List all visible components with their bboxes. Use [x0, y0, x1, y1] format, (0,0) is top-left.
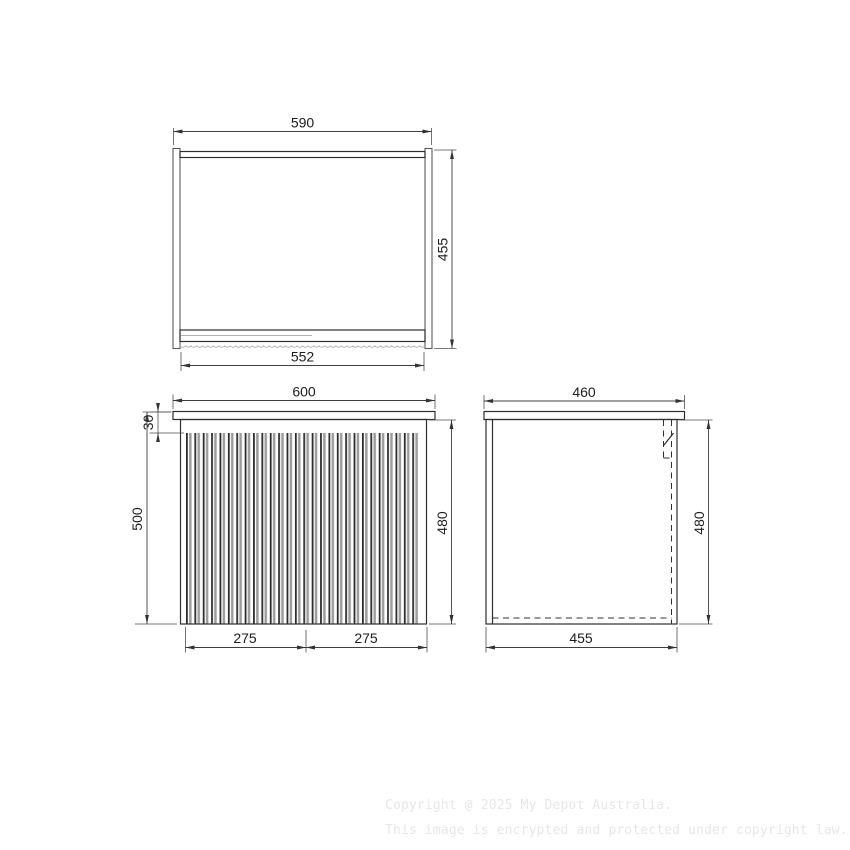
drawing-canvas: 590 552 455 600 30 500 — [0, 0, 850, 850]
top-view-right-side-panel — [425, 149, 432, 349]
dim-label-door-left: 275 — [233, 630, 257, 646]
dim-label-side-body-depth: 455 — [569, 630, 593, 646]
front-view: 600 30 500 480 275 275 — [129, 384, 456, 653]
dim-label-height: 500 — [129, 507, 145, 531]
wave-line — [180, 346, 425, 348]
dim-label-front-body-height: 480 — [434, 511, 450, 535]
dim-label-side-body-height: 480 — [691, 511, 707, 535]
watermark-line-2: This image is encrypted and protected un… — [385, 823, 848, 838]
fluted-door-panel — [186, 433, 421, 624]
dim-label-top-width: 590 — [291, 115, 315, 131]
technical-drawing: 590 552 455 600 30 500 — [0, 0, 850, 850]
top-width-extension-lines — [174, 128, 432, 145]
wall-hook-diagonal — [664, 433, 674, 445]
dim-label-side-top-depth: 460 — [572, 384, 596, 400]
watermark-line-1: Copyright @ 2025 My Depot Australia. — [385, 798, 672, 813]
side-view: 460 480 455 — [484, 384, 713, 653]
dim-label-shelf-width: 552 — [291, 349, 315, 365]
dim-label-top-depth: 455 — [435, 238, 451, 262]
front-countertop — [173, 412, 435, 420]
dim-label-front-width: 600 — [292, 384, 316, 400]
top-view-left-side-panel — [173, 149, 180, 349]
door-extension-lines — [186, 627, 428, 653]
side-countertop — [484, 412, 685, 420]
top-view-back-rail — [180, 152, 425, 158]
side-cabinet-body — [486, 420, 677, 625]
dim-label-reveal: 30 — [140, 415, 156, 431]
dim-label-door-right: 275 — [354, 630, 378, 646]
top-view: 590 552 455 — [173, 115, 457, 372]
